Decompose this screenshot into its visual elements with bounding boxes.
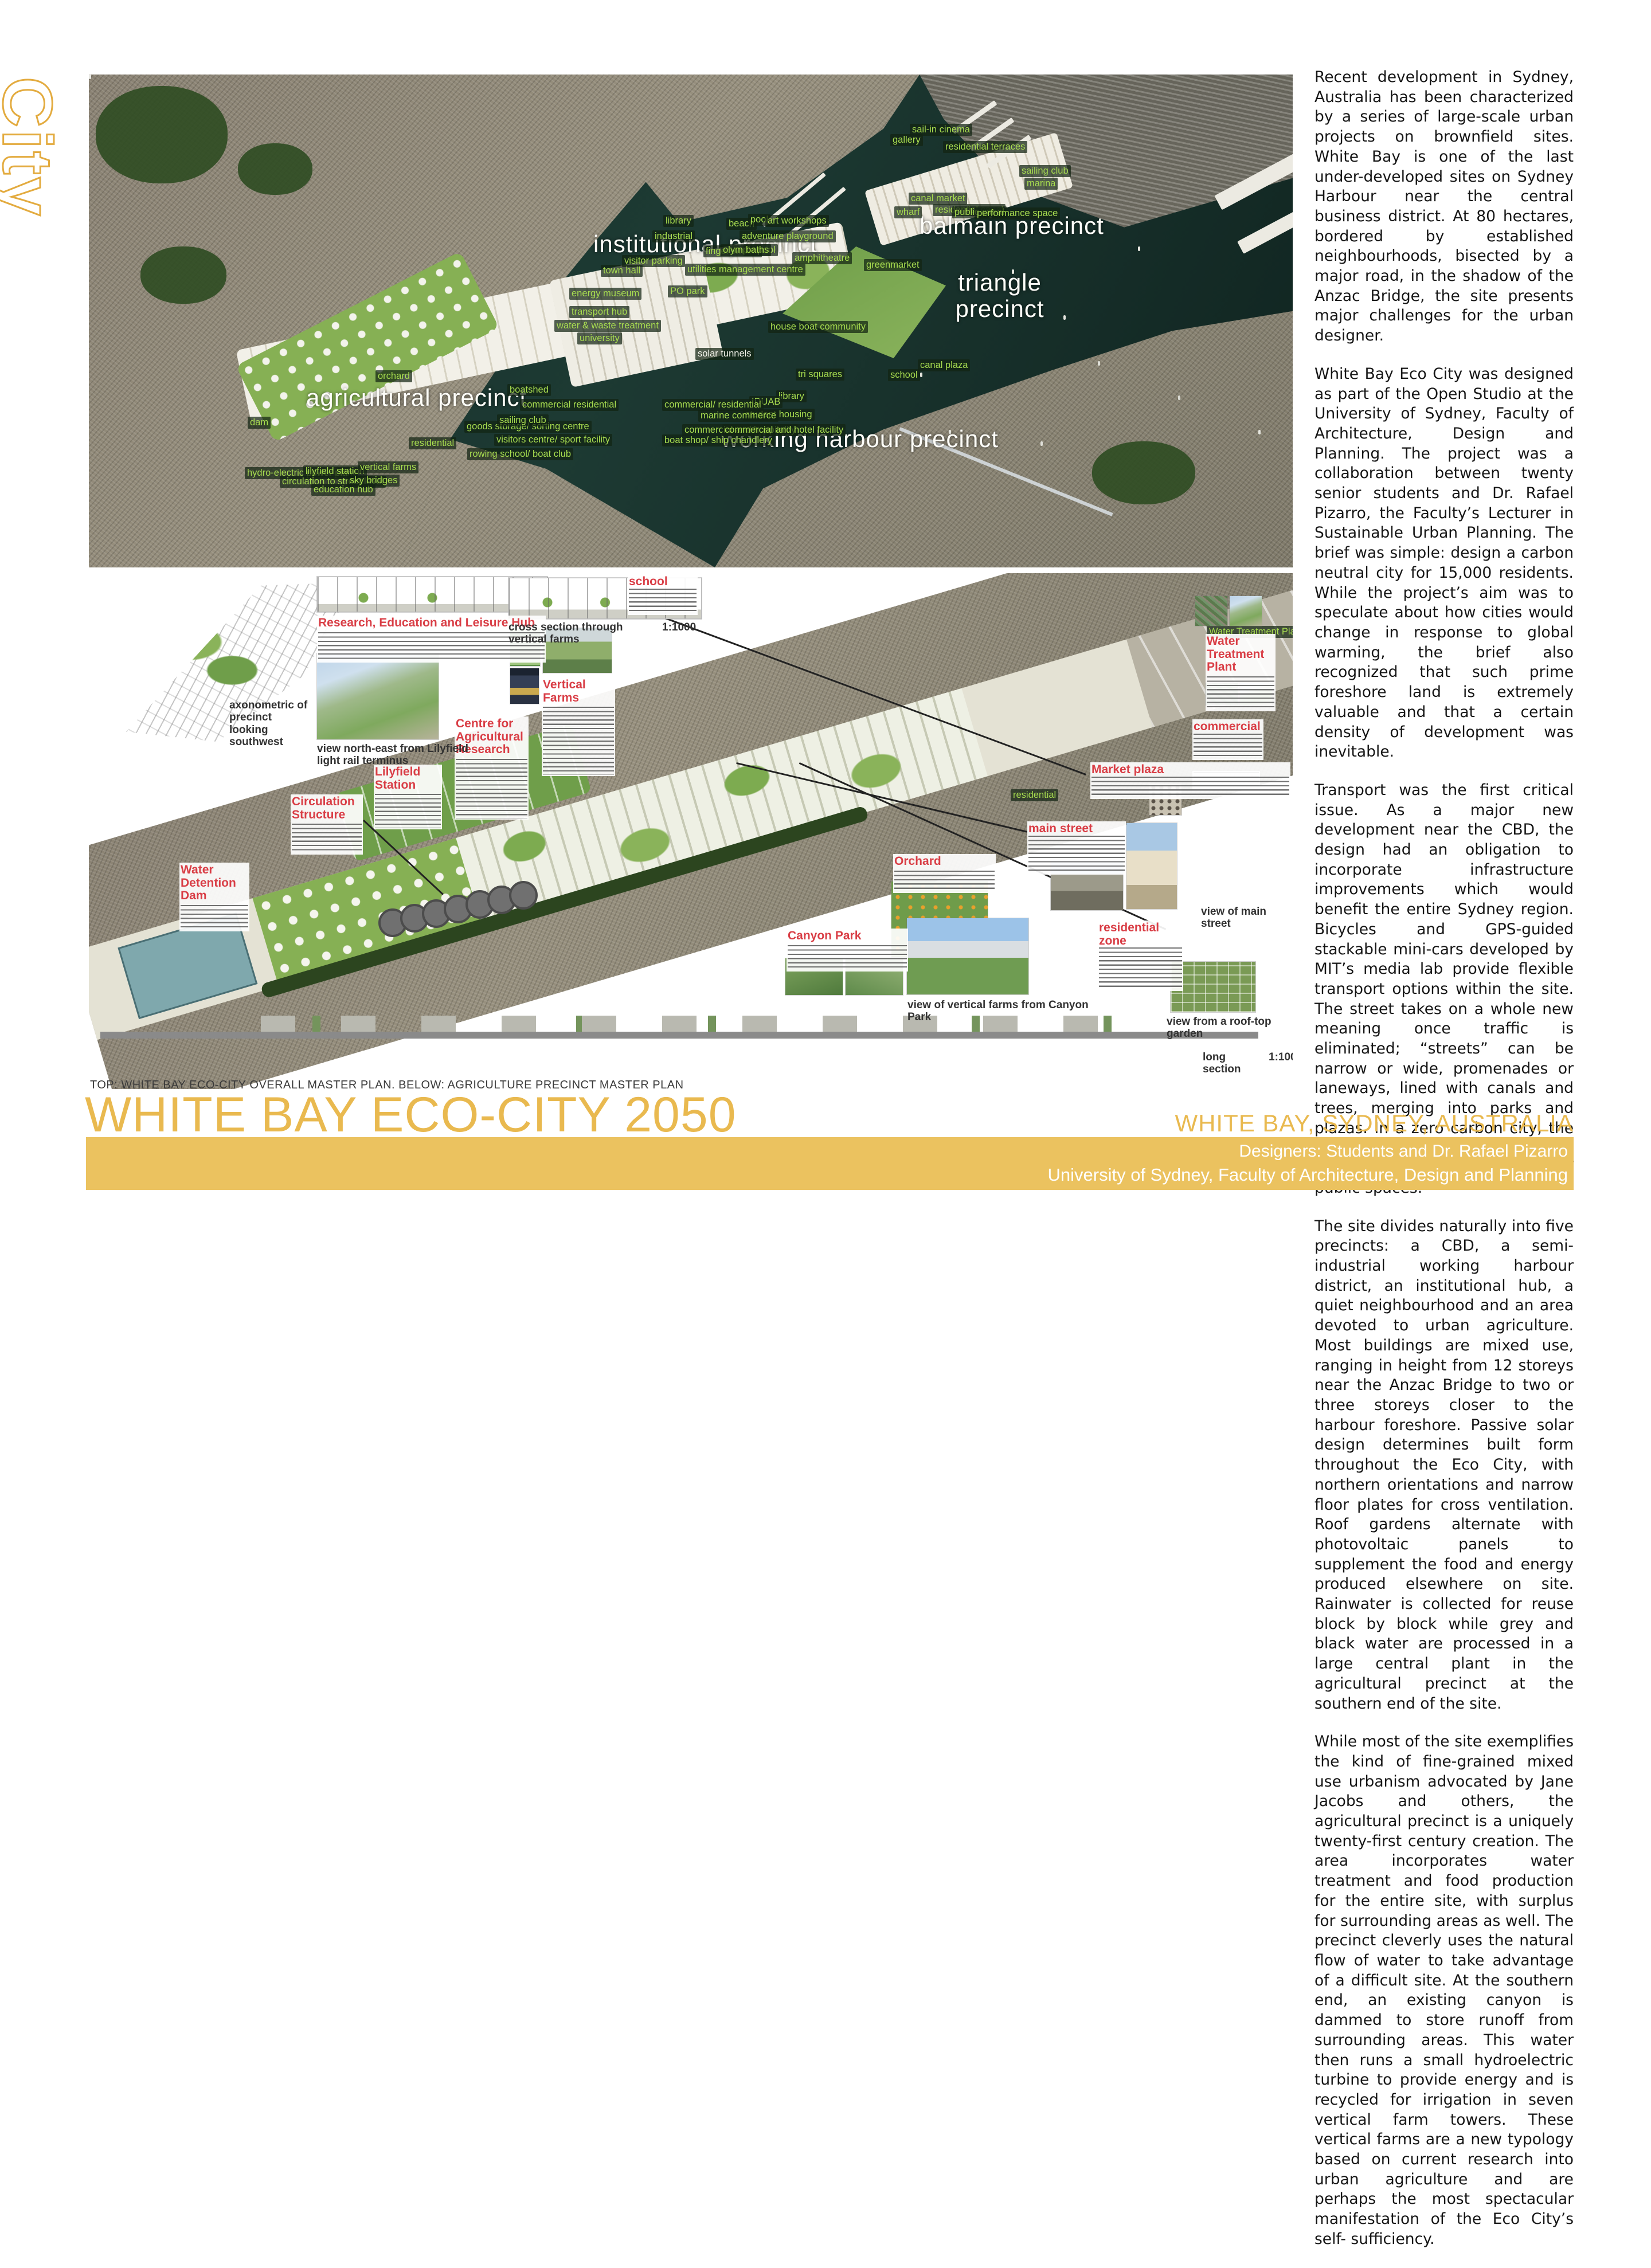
paragraph-studio: White Bay Eco City was designed as part …: [1314, 365, 1574, 762]
map-feature-label: sailing club: [1019, 165, 1071, 177]
annotation-market-plaza: Market plaza: [1090, 762, 1290, 799]
plan-feature-label: residential: [1011, 789, 1058, 801]
annotation-heading: Vertical Farms: [543, 679, 614, 704]
map-feature-label: rowing school/ boat club: [467, 448, 573, 460]
annotation-heading: Orchard: [894, 855, 995, 868]
annotation-heading: school: [629, 575, 668, 588]
map-feature-label: baths: [744, 244, 771, 256]
map-feature-label: school: [888, 369, 920, 381]
map-feature-label: canal plaza: [918, 359, 970, 371]
plan-caption: view of vertical farms from Canyon Park: [907, 999, 1097, 1024]
map-feature-label: commercial residential: [520, 399, 619, 411]
annotation-body-text: [543, 707, 614, 774]
annotation-body-text: [788, 945, 907, 970]
university-credit: University of Sydney, Faculty of Archite…: [1048, 1165, 1568, 1185]
dock-shed: [1237, 201, 1293, 254]
map-feature-label: library: [663, 215, 694, 227]
designers-credit: Designers: Students and Dr. Rafael Pizar…: [1239, 1142, 1568, 1161]
poster-title: WHITE BAY ECO-CITY 2050: [85, 1087, 737, 1143]
map-feature-label: boat shop/ ship chandlery: [662, 434, 774, 446]
overall-master-plan-map: institutional precinctbalmain precincttr…: [89, 75, 1293, 567]
plan-caption: 1:1000: [662, 621, 702, 633]
map-feature-label: sailing club: [497, 414, 549, 426]
annotation-centre-agricultural-research: Centre for Agricultural Research: [455, 716, 529, 820]
map-feature-label: marine commerce: [698, 410, 778, 422]
annotation-heading: Canyon Park: [788, 930, 907, 943]
annotation-heading: commercial: [1194, 720, 1261, 733]
paragraph-precincts: The site divides naturally into five pre…: [1314, 1217, 1574, 1714]
map-feature-label: performance space: [975, 207, 1060, 220]
annotation-heading: Circulation Structure: [292, 796, 362, 821]
map-feature-label: solar tunnels: [695, 348, 754, 360]
map-feature-label: water & waste treatment: [554, 320, 661, 332]
annotation-body-text: [1194, 734, 1262, 759]
map-feature-label: dam: [248, 417, 271, 429]
annotation-body-text: [181, 905, 248, 930]
annotation-heading: residential zone: [1099, 921, 1159, 947]
map-feature-label: canal market: [909, 193, 967, 205]
map-feature-label: amphitheatre: [792, 252, 852, 264]
photo-plan-aerial-2: [1230, 596, 1262, 626]
map-feature-label: university: [577, 332, 622, 344]
poster-page: { "page": { "vertical_title": "City", "f…: [0, 0, 1651, 1238]
annotation-heading: main street: [1028, 822, 1093, 835]
map-feature-label: boatshed: [507, 384, 551, 396]
map-feature-label: orchard: [375, 370, 412, 382]
vertical-page-title: City: [0, 77, 68, 218]
map-feature-label: energy museum: [569, 288, 641, 300]
map-feature-label: residential terraces: [943, 141, 1027, 153]
map-feature-label: sky bridges: [347, 475, 400, 487]
map-feature-label: utilities management centre: [685, 264, 805, 276]
annotation-vertical-farms: Vertical Farms: [542, 677, 615, 776]
annotation-water-treatment-plant: Water Treatment Plant: [1206, 634, 1276, 711]
annotation-commercial: commercial: [1192, 719, 1263, 760]
paragraph-site: Recent development in Sydney, Australia …: [1314, 68, 1574, 346]
map-feature-label: industrial: [652, 230, 695, 242]
annotation-body-text: [1028, 836, 1125, 874]
annotation-heading: Market plaza: [1091, 763, 1164, 776]
annotation-body-text: [894, 871, 995, 892]
paragraph-agriculture: While most of the site exemplifies the k…: [1314, 1732, 1574, 2249]
map-feature-label: town hall: [601, 265, 643, 277]
plan-caption: axonometric of precinct looking southwes…: [229, 699, 310, 748]
map-feature-label: greenmarket: [864, 259, 922, 271]
annotation-heading: Water Treatment Plant: [1207, 635, 1274, 674]
annotation-body-text: [1207, 676, 1274, 710]
location-title: WHITE BAY, SYDNEY, AUSTRALIA: [1175, 1110, 1574, 1137]
annotation-body-text: [1099, 947, 1182, 990]
agriculture-precinct-plan: residentialWater Treatment PlantResearch…: [89, 573, 1293, 1089]
map-feature-label: house boat community: [768, 321, 868, 333]
boats: [89, 75, 91, 79]
annotation-heading: Water Detention Dam: [181, 864, 248, 903]
map-feature-label: art workshops: [765, 215, 829, 227]
photo-main-street-render: [1126, 823, 1177, 909]
plan-caption: 1:1000: [1269, 1051, 1293, 1063]
map-feature-label: residential: [409, 437, 456, 449]
map-feature-label: marina: [1024, 178, 1058, 190]
park-area: [1092, 441, 1195, 504]
precinct-label: agricultural precinct: [306, 384, 527, 412]
map-feature-label: transport hub: [569, 306, 629, 318]
annotation-canyon-park: Canyon Park: [787, 929, 908, 972]
annotation-main-street: main street: [1027, 821, 1126, 875]
annotation-circulation-structure: Circulation Structure: [291, 794, 363, 855]
map-feature-label: commercial/ residential: [662, 399, 764, 411]
photo-tower-night: [510, 668, 539, 704]
annotation-body-text: [456, 759, 527, 818]
annotation-body-text: [629, 589, 697, 614]
annotation-body-text: [292, 824, 362, 853]
park-area: [238, 143, 312, 195]
map-feature-label: tri squares: [796, 369, 844, 381]
photo-lilyfield-view: [317, 653, 439, 739]
map-feature-label: visitors centre/ sport facility: [494, 434, 612, 446]
map-feature-label: vertical farms: [358, 461, 418, 473]
annotation-body-text: [1091, 777, 1289, 798]
map-feature-label: sail-in cinema: [910, 124, 972, 136]
credits-band: Designers: Students and Dr. Rafael Pizar…: [86, 1137, 1574, 1190]
storage-tank: [509, 881, 538, 910]
map-feature-label: gallery: [890, 134, 923, 146]
annotation-residential-zone: residential zone: [1098, 920, 1183, 991]
park-area: [140, 246, 226, 304]
plan-caption: view of main street: [1201, 906, 1293, 930]
annotation-heading: Lilyfield Station: [375, 766, 441, 792]
long-section-ground: [100, 1032, 1258, 1039]
map-feature-label: wharf: [894, 206, 922, 218]
plan-caption: view from a roof-top garden: [1167, 1016, 1293, 1040]
map-feature-label: adventure playground: [740, 230, 836, 242]
photo-rooftop-garden: [1171, 962, 1255, 1012]
plan-caption: long section: [1203, 1051, 1266, 1076]
annotation-water-detention-dam: Water Detention Dam: [179, 863, 249, 931]
photo-plan-aerial-1: [1195, 596, 1227, 626]
annotation-lilyfield-station: Lilyfield Station: [374, 765, 442, 829]
annotation-body-text: [375, 794, 441, 828]
plan-caption: view north-east from Lilyfield light rai…: [317, 743, 489, 767]
map-feature-label: PO park: [668, 285, 707, 297]
photo-vertical-farms-canyon: [907, 918, 1028, 994]
annotation-orchard: Orchard: [893, 854, 996, 893]
park-area: [96, 86, 228, 183]
precinct-label: triangle precinct: [934, 269, 1066, 322]
plan-caption: cross section through vertical farms: [508, 621, 652, 646]
annotation-school: school: [628, 574, 698, 615]
